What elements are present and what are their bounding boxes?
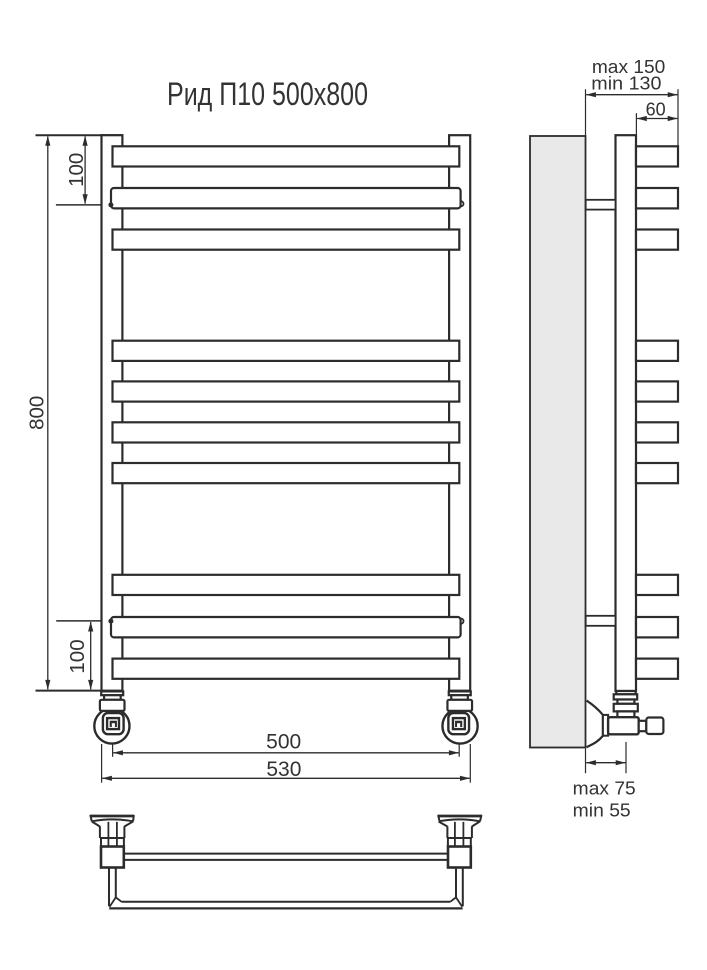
svg-text:530: 530 — [266, 758, 301, 781]
svg-text:Рид П10 500x800: Рид П10 500x800 — [167, 76, 368, 112]
svg-text:100: 100 — [66, 639, 89, 673]
svg-text:100: 100 — [65, 153, 88, 187]
svg-text:60: 60 — [646, 100, 666, 120]
svg-text:max 75: max 75 — [573, 779, 636, 799]
svg-text:min 130: min 130 — [591, 74, 661, 94]
svg-text:min 55: min 55 — [573, 800, 631, 820]
svg-text:500: 500 — [266, 730, 301, 753]
svg-text:800: 800 — [25, 396, 48, 430]
